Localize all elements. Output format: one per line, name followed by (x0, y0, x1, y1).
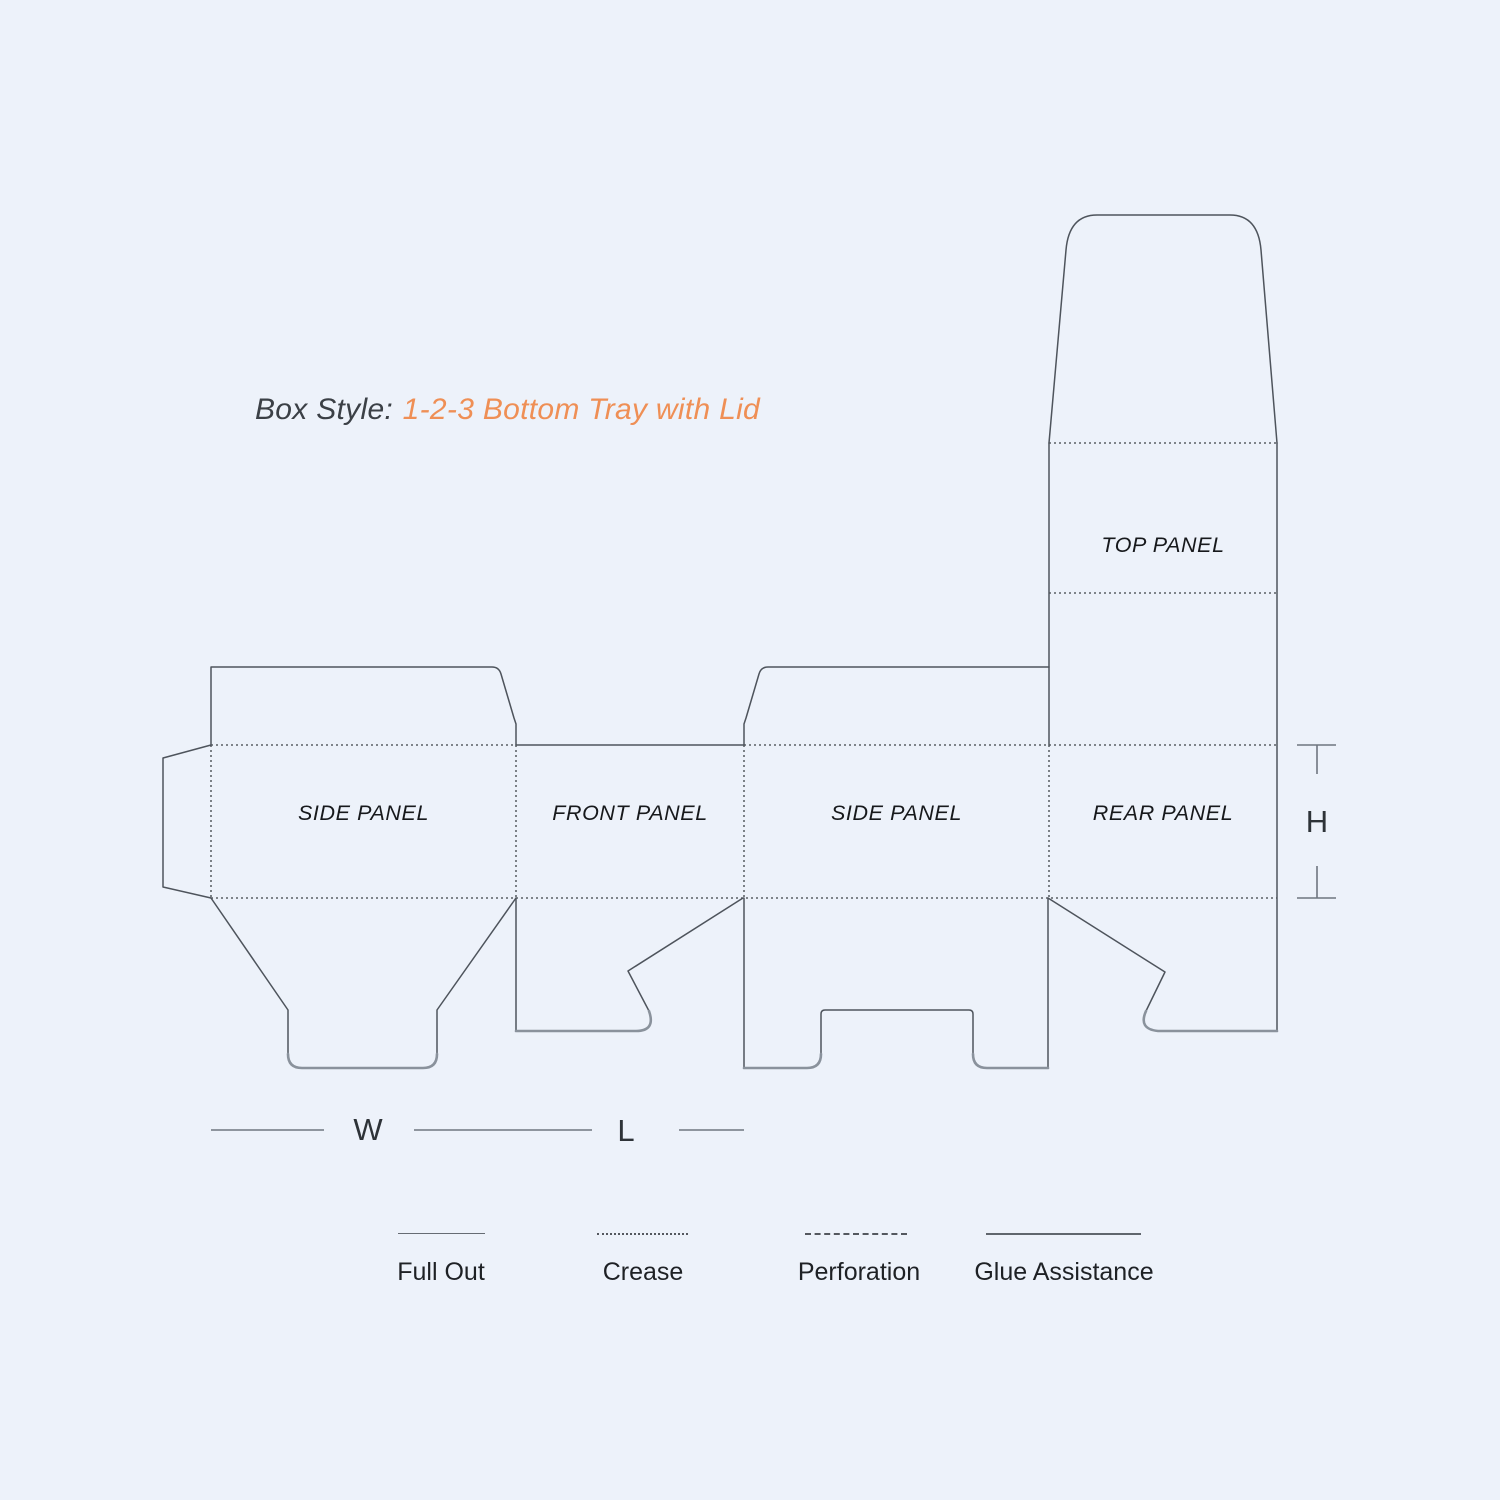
glue-edge-rear-flap (1144, 1011, 1277, 1031)
front-panel-label: FRONT PANEL (516, 800, 744, 826)
legend-sample-full-out (398, 1233, 485, 1234)
rear-panel-label: REAR PANEL (1049, 800, 1277, 826)
legend-sample-perforation (805, 1233, 907, 1235)
length-dimension-label: L (596, 1113, 656, 1149)
rear-bottom-flap-outline (1048, 898, 1277, 1031)
legend-label-perforation: Perforation (779, 1257, 939, 1287)
diagram-title: Box Style:1-2-3 Bottom Tray with Lid (255, 393, 760, 427)
legend-sample-glue-assistance (986, 1233, 1141, 1235)
front-bottom-flap-outline (516, 898, 743, 1031)
side1-top-flap-outline (211, 667, 516, 745)
side-panel-1-label: SIDE PANEL (211, 800, 516, 826)
side1-bottom-flap-outline (211, 898, 516, 1068)
legend-label-glue-assistance: Glue Assistance (964, 1257, 1164, 1287)
width-dimension-label: W (338, 1112, 398, 1148)
box-style-name: 1-2-3 Bottom Tray with Lid (393, 393, 760, 426)
glue-edge-side1-tab (288, 1054, 437, 1068)
side2-top-flap-outline (744, 667, 1049, 745)
side-panel-2-label: SIDE PANEL (744, 800, 1049, 826)
legend-label-crease: Crease (563, 1257, 723, 1287)
cut-lines (163, 215, 1277, 1068)
legend-sample-crease (597, 1233, 688, 1235)
lid-tuck-flap-outline (1049, 215, 1277, 443)
title-prefix: Box Style: (255, 393, 393, 426)
dieline-diagram (0, 0, 1500, 1500)
glue-edge-side2-flap (744, 1054, 1048, 1068)
top-panel-label: TOP PANEL (1049, 532, 1277, 558)
height-dimension-label: H (1287, 804, 1347, 840)
glue-edge-front-flap (516, 1011, 651, 1031)
side2-bottom-flap-outline (744, 898, 1048, 1068)
legend-label-full-out: Full Out (361, 1257, 521, 1287)
crease-lines (211, 443, 1277, 898)
glue-flap-outline (163, 745, 211, 898)
